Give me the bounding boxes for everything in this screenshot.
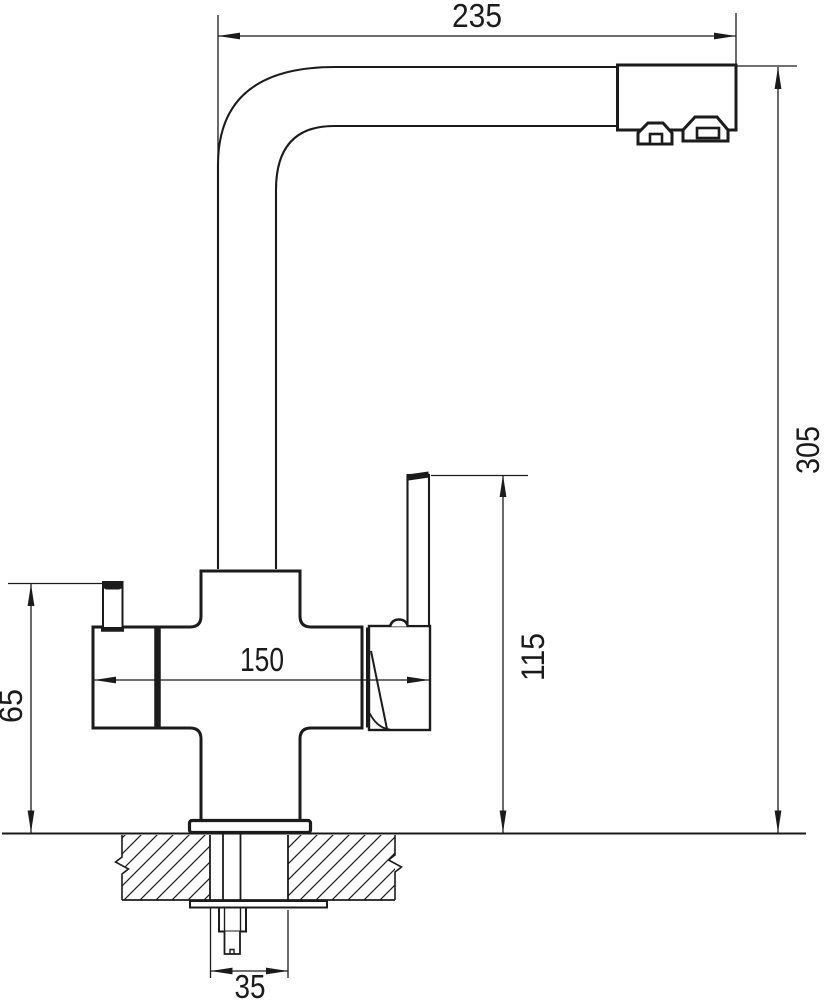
arrowhead-right [266, 968, 288, 975]
arrowhead-left [211, 968, 233, 975]
dimension-overall-height: 305 [736, 66, 824, 833]
technical-drawing-canvas: 235 305 150 115 65 35 [0, 0, 824, 1000]
right-handle [367, 475, 430, 731]
arrowhead-top [775, 67, 782, 89]
right-handle-body [369, 626, 430, 730]
countertop-hatch-left [122, 835, 210, 900]
dimension-label-115: 115 [515, 633, 551, 681]
mounting-washer [190, 901, 327, 908]
dimension-side-handle-height: 65 [0, 584, 103, 833]
dimension-lever-height: 115 [431, 475, 551, 833]
body-cross-outline [93, 571, 362, 821]
faucet-dimension-drawing: 235 305 150 115 65 35 [0, 0, 824, 1000]
lever-base-bump [390, 620, 408, 627]
spout-head [618, 65, 737, 144]
countertop-section [2, 834, 806, 901]
arrowhead-bottom [28, 811, 35, 833]
dimension-label-150: 150 [240, 641, 284, 678]
aerator-right-outlet [697, 128, 719, 138]
dimension-label-35: 35 [235, 968, 266, 1000]
lever-rod-cap [408, 475, 429, 478]
dimension-label-235: 235 [452, 0, 502, 34]
dimension-label-305: 305 [790, 426, 824, 474]
stud-tail [225, 932, 241, 955]
arrowhead-left [218, 33, 240, 40]
aerator-left-outlet [650, 134, 662, 144]
arrowhead-bottom [775, 811, 782, 833]
base-plate [190, 821, 311, 833]
base-plate-flange [190, 821, 311, 833]
spout-inner-profile [276, 126, 618, 569]
lever-rod [408, 475, 430, 626]
arrowhead-right [714, 33, 736, 40]
arrowhead-top [500, 475, 507, 497]
arrowhead-top [28, 584, 35, 606]
dimension-label-65: 65 [0, 689, 29, 723]
faucet-body [93, 571, 362, 821]
mounting-nut [219, 908, 246, 932]
arrowhead-bottom [500, 811, 507, 833]
countertop-hatch-right [288, 835, 395, 900]
